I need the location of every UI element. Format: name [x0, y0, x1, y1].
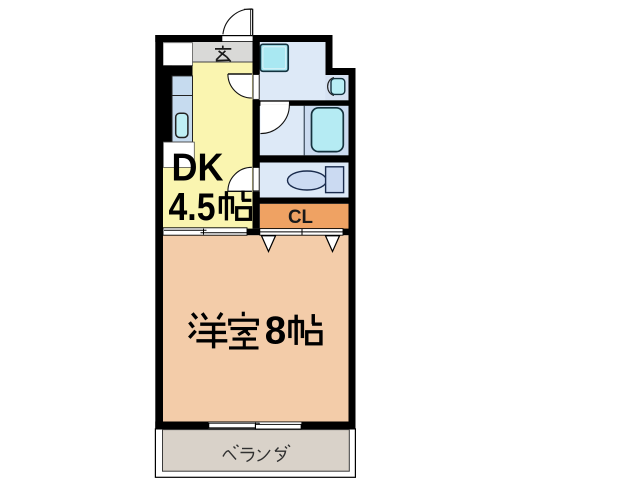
svg-text:DK: DK [172, 147, 224, 190]
svg-text:8: 8 [265, 310, 286, 353]
svg-text:4.5: 4.5 [169, 186, 216, 229]
svg-text:CL: CL [288, 207, 313, 228]
